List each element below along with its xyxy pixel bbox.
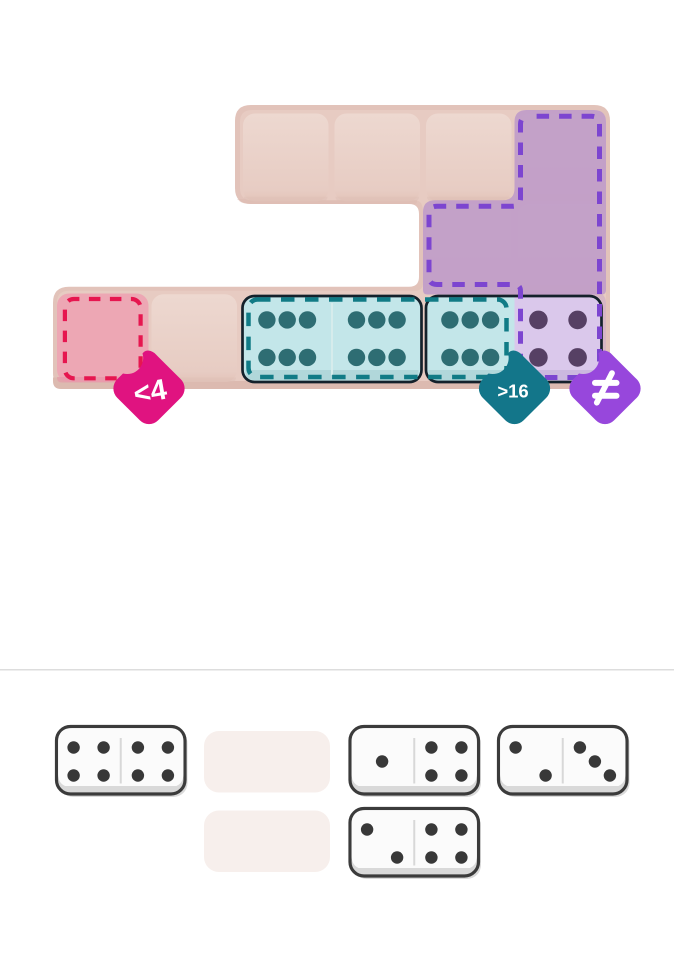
svg-text:<4: <4	[131, 374, 169, 411]
svg-text:>16: >16	[497, 380, 528, 401]
